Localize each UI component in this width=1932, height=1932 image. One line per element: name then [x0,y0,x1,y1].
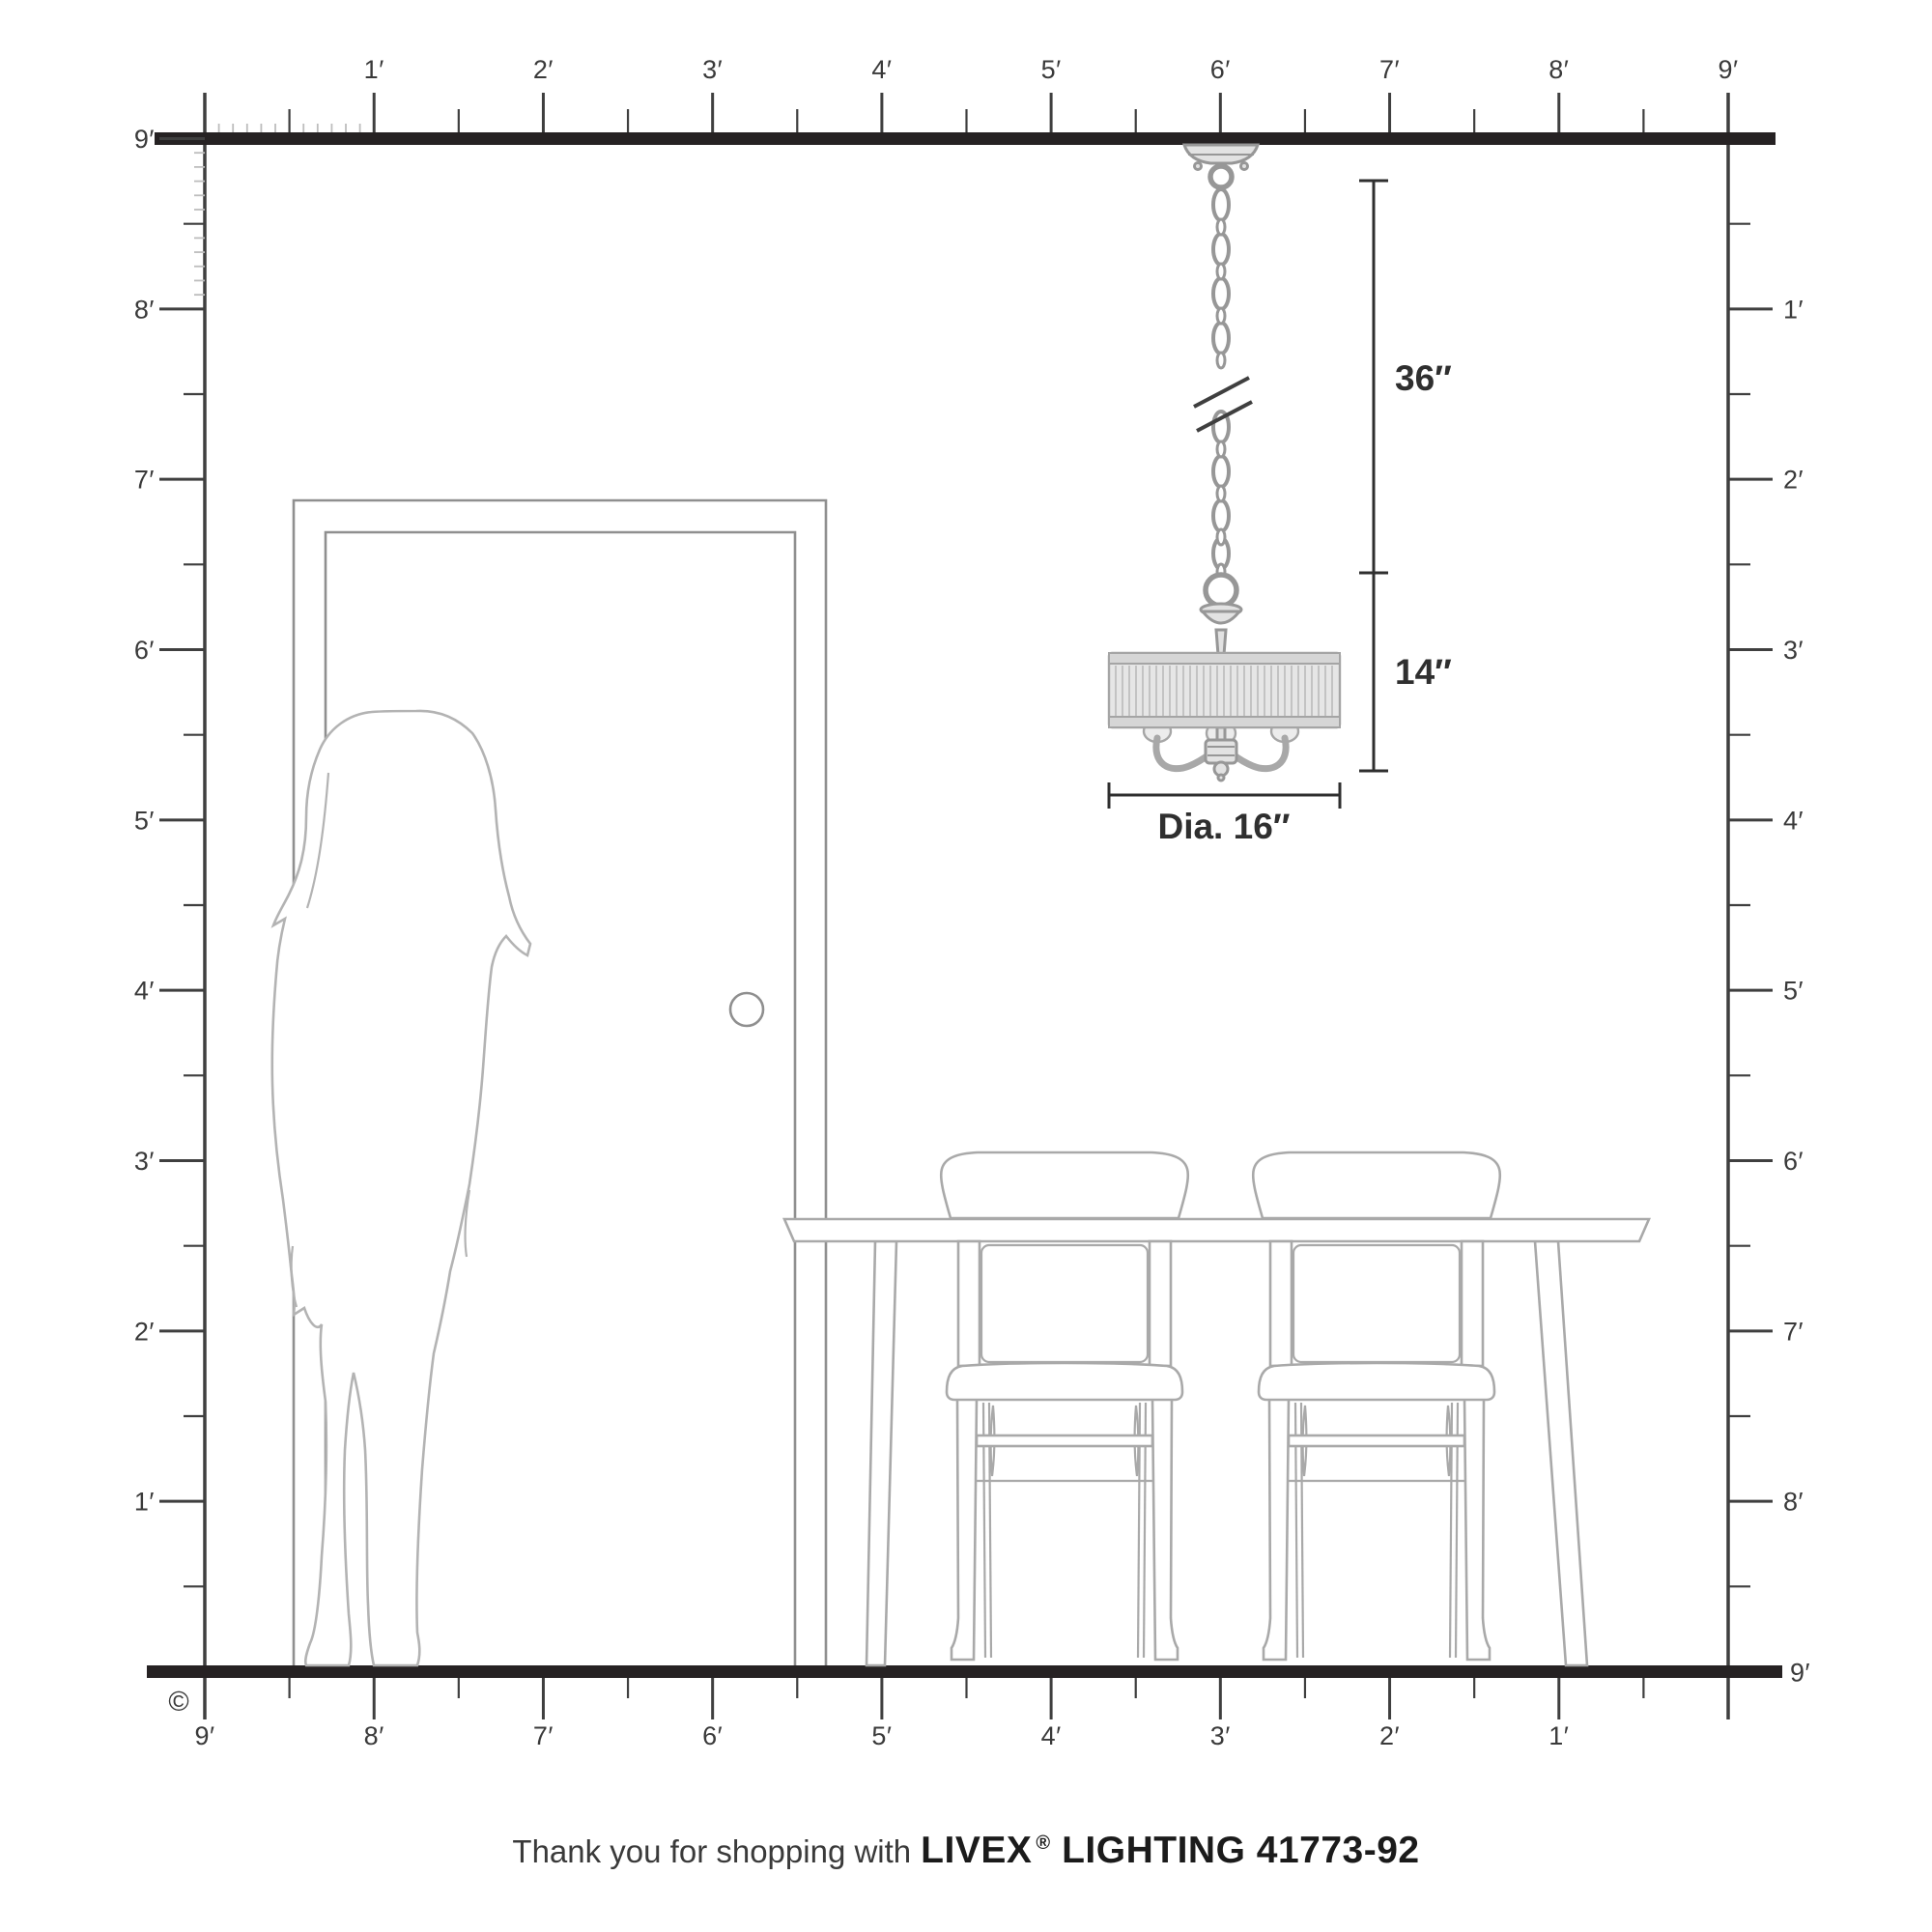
arm-right [1232,738,1286,769]
footer-thanks-text: Thank you for shopping with [512,1833,911,1870]
left-ruler-label: 4′ [134,977,155,1006]
top-ruler-label: 4′ [871,55,892,84]
chain-link-small [1217,353,1225,368]
chain-link-small [1217,264,1225,279]
bottom-ruler-label: 4′ [1041,1721,1062,1750]
chain-link [1213,500,1229,531]
chain-link-small [1217,529,1225,545]
arm-left [1156,738,1210,769]
right-ruler-label: 6′ [1783,1147,1804,1176]
product-number-text: LIGHTING 41773-92 [1062,1830,1419,1872]
right-ruler-label: 8′ [1783,1488,1804,1517]
fixture-height-label: 14″ [1395,652,1452,692]
brand-name: LIVEX [921,1830,1032,1872]
left-ruler-label: 5′ [134,806,155,835]
chain-link [1213,456,1229,487]
bobeche-cup [1203,611,1239,623]
top-ruler-label: 1′ [364,55,384,84]
footer: Thank you for shopping with LIVEX ® LIGH… [0,1830,1932,1872]
top-ruler-label: 8′ [1548,55,1569,84]
chain-link [1213,278,1229,309]
bottom-ruler-label: 3′ [1210,1721,1231,1750]
top-ruler-label: 3′ [702,55,723,84]
table-top [784,1219,1649,1241]
right-ruler-label: 5′ [1783,977,1804,1006]
registered-trademark-symbol: ® [1036,1833,1050,1855]
right-ruler-label: 2′ [1783,466,1804,495]
chain [1213,189,1229,580]
top-ruler-label: 9′ [1718,55,1738,84]
left-ruler-label: 8′ [134,295,155,324]
left-ruler-label: 3′ [134,1147,155,1176]
diameter-label: Dia. 16″ [1157,807,1290,846]
bottom-ruler-label: 2′ [1379,1721,1400,1750]
left-ruler-label: 7′ [134,466,155,495]
chain-link-small [1217,441,1225,457]
bottom-ruler-label: 9′ [194,1721,214,1750]
chain-link-small [1217,219,1225,235]
hanging-ring-top [1210,166,1232,187]
bottom-ruler-label: 7′ [533,1721,554,1750]
right-ruler-label: 7′ [1783,1317,1804,1346]
left-ruler-label: 1′ [134,1488,155,1517]
diagram-svg: 1′2′3′4′5′6′7′8′9′9′8′7′6′5′4′3′2′1′1′2′… [0,0,1932,1932]
top-ruler-label: 2′ [533,55,554,84]
bottom-ruler-label: 5′ [871,1721,892,1750]
finial-tip [1218,775,1224,781]
canopy-screw-right [1241,163,1248,170]
bottom-ruler-label: 8′ [364,1721,384,1750]
copyright-symbol: © [168,1687,188,1718]
shade-top-band [1109,653,1340,664]
chain-link-small [1217,308,1225,324]
top-ruler-label: 6′ [1210,55,1231,84]
break-mark-1 [1194,378,1249,407]
stem [1216,630,1226,655]
hub [1206,740,1236,763]
door-knob [730,993,763,1026]
chain-length-label: 36″ [1395,358,1452,398]
top-ruler-label: 7′ [1379,55,1400,84]
hanging-ring-bottom [1206,575,1236,606]
left-ruler-label: 2′ [134,1317,155,1346]
dimension-diagram: 1′2′3′4′5′6′7′8′9′9′8′7′6′5′4′3′2′1′1′2′… [0,0,1932,1932]
person-silhouette [272,711,530,1665]
floor-bar [147,1665,1782,1678]
chain-link [1213,323,1229,354]
canopy-screw-left [1195,163,1202,170]
table-right-leg [1535,1241,1587,1665]
table-left-leg [867,1241,896,1665]
right-ruler-label: 4′ [1783,806,1804,835]
right-ruler-label: 3′ [1783,636,1804,665]
dimension-annotations: 36″ 14″ Dia. 16″ [1109,181,1452,846]
ceiling-bar [155,132,1776,145]
person-outline [272,711,530,1665]
pendant-light-drawing [1109,145,1340,781]
right-ruler-label: 1′ [1783,295,1804,324]
chain-link-small [1217,486,1225,501]
left-ruler-label: 6′ [134,636,155,665]
right-ruler-label: 9′ [1790,1659,1810,1688]
top-ruler-label: 5′ [1041,55,1062,84]
chain-link [1213,234,1229,265]
chain-link [1213,189,1229,220]
shade-bottom-band [1109,717,1340,727]
drum-shade [1109,653,1340,727]
bottom-ruler-label: 6′ [702,1721,723,1750]
bottom-ruler-label: 1′ [1548,1721,1569,1750]
left-ruler-label: 9′ [134,125,155,154]
